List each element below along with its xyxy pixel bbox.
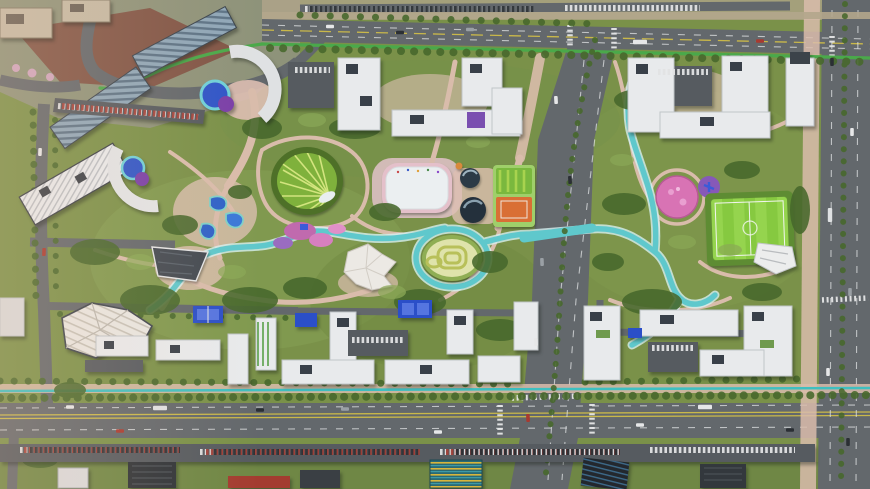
aerial-masterplan-render	[0, 0, 870, 489]
masterplan-canvas	[0, 0, 870, 489]
dusk-light-overlay	[0, 0, 870, 489]
